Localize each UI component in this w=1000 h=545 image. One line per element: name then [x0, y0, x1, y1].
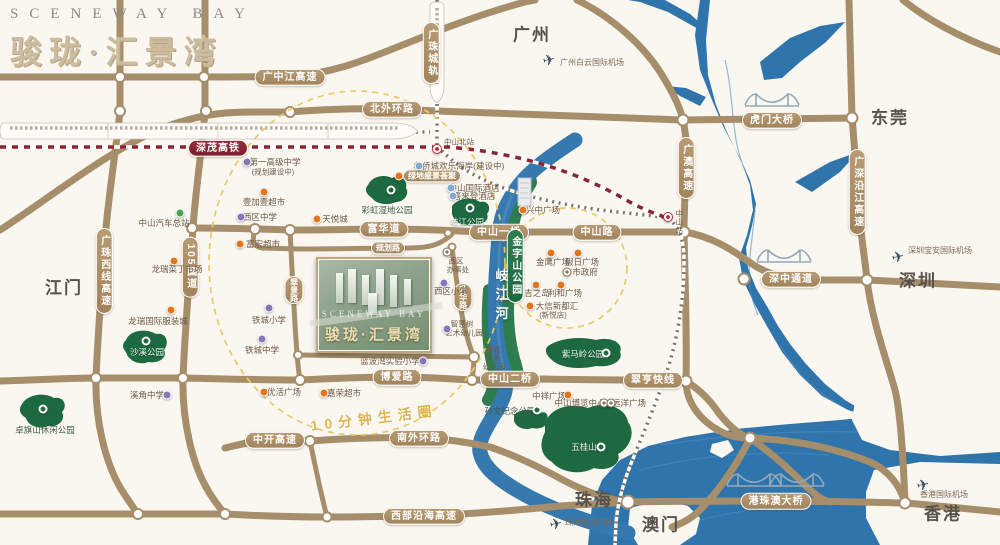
- badge-boai-road: 博爱路: [373, 369, 422, 386]
- label-no1-senior-high: 第一高级中学: [249, 158, 300, 167]
- poi-dot-orange: [167, 306, 176, 315]
- label-zhongshan-expo-center: 中山博览中心: [554, 399, 605, 408]
- badge-humen-bridge: 虎门大桥: [742, 112, 802, 129]
- badge-zhongkai-expwy: 中开高速: [245, 432, 305, 449]
- poi-dot-orange: [574, 249, 583, 258]
- label-sheraton-hotel: 喜来登酒店: [453, 192, 496, 201]
- poi-dot-blue: [449, 192, 458, 201]
- poi-dot-orange: [395, 172, 404, 181]
- poi-dot-orange: [236, 240, 245, 249]
- label-jucheng-kindergarten-2: 子弟: [486, 354, 501, 362]
- label-xiqu-office-2: 办事处: [447, 266, 470, 274]
- badge-zhongshan-bridge-2: 中山二桥: [480, 371, 540, 388]
- badge-cuiheng-express: 翠亨快线: [623, 372, 683, 389]
- label-jusco: 吉之岛: [524, 289, 550, 298]
- badge-guangzhu-rail: 广珠城轨: [423, 22, 440, 84]
- badge-north-outer-ring: 北外环路: [362, 101, 422, 118]
- badge-hzm-bridge: 港珠澳大桥: [741, 493, 812, 510]
- badge-cuijing-road: 翠景路: [284, 276, 303, 304]
- label-xiqu-primary: 西区小学: [434, 287, 468, 296]
- park-icon: [466, 204, 475, 213]
- rail-station-dot: [663, 212, 673, 222]
- label-yijiayi-supermarket: 壹加壹超市: [243, 198, 286, 207]
- airplane-icon: ✈: [890, 247, 906, 267]
- project-title: 骏珑·汇景湾: [325, 323, 423, 344]
- label-holiday-plaza: 假日广场: [565, 258, 599, 267]
- poi-dot-orange: [170, 257, 179, 266]
- brand-logo-en: SCENEWAY BAY: [10, 6, 256, 23]
- poi-dot-green: [176, 209, 185, 218]
- label-zhongshan-bus-terminal: 中山汽车总站: [138, 219, 189, 228]
- label-oct-happy-coast: 华侨城欢乐海岸(建设中): [414, 162, 505, 171]
- label-fuhong-supermarket: 富宏超市: [246, 240, 280, 249]
- airplane-icon: ✈: [548, 514, 564, 534]
- label-zimaling-park: 紫马岭公园: [562, 350, 605, 359]
- label-longrui-market: 龙瑞菜丁市场: [151, 265, 202, 274]
- city-dongguan: 东莞: [871, 110, 909, 127]
- life-circle-label: 10分钟生活圈: [310, 403, 438, 432]
- park-icon: [142, 337, 151, 346]
- label-shaxi-park: 沙溪公园: [130, 348, 164, 357]
- label-lihe-plaza: 利和广场: [548, 289, 582, 298]
- label-tiecheng-middle: 铁城中学: [245, 346, 279, 355]
- label-xijiao-middle: 溪角中学: [130, 391, 164, 400]
- brand-logo-cn: 骏珑·汇景湾: [10, 27, 256, 73]
- poi-dot-purple: [440, 279, 449, 288]
- poi-dot-purple: [419, 357, 428, 366]
- park-icon: [387, 186, 396, 195]
- poi-dot-orange: [532, 281, 541, 290]
- poi-dot-orange: [526, 302, 535, 311]
- city-hongkong: 香港: [924, 506, 962, 523]
- badge-south-outer-ring: 南外环路: [389, 430, 449, 447]
- qijiang-river-label: 岐江河: [495, 269, 508, 326]
- airplane-icon: ✈: [915, 475, 931, 495]
- label-xingzhong-plaza: 兴中广场: [526, 206, 560, 215]
- label-wuguishan: 五桂山: [571, 443, 597, 452]
- label-baoan-airport: 深圳宝安国际机场: [908, 247, 972, 255]
- label-no1-senior-high-note: (规划建设中): [252, 168, 295, 176]
- label-tiecheng-primary: 铁城小学: [252, 316, 286, 325]
- label-sunwen-memorial-park: 孙文纪念公园: [484, 407, 535, 416]
- label-overlay: SCENEWAY BAY 骏珑·汇景湾 SCENEWAY BAY 骏珑·汇景湾 …: [0, 0, 1000, 545]
- city-guangzhou: 广州: [513, 27, 551, 44]
- poi-dot-ring: [443, 248, 452, 257]
- park-icon: [602, 349, 611, 358]
- city-shenzhen: 深圳: [899, 273, 937, 290]
- poi-dot-ring: [563, 268, 572, 277]
- badge-shenzhong-corridor: 深中通道: [761, 271, 821, 288]
- poi-dot-purple: [265, 304, 274, 313]
- label-daxin-metro-mall: 大信新都汇: [536, 302, 579, 311]
- label-yuanyang-plaza: 远洋广场: [612, 399, 646, 408]
- label-jiarong-supermarket: 嘉荣超市: [327, 389, 361, 398]
- badge-guangao-expwy: 广澳高速: [678, 137, 695, 199]
- poi-dot-orange: [519, 206, 528, 215]
- badge-shengjing-huiju: 绿地盛景荟聚: [403, 169, 461, 182]
- poi-dot-purple: [163, 391, 172, 400]
- badge-planned-road: 规划路: [371, 241, 405, 254]
- poi-dot-purple: [258, 335, 267, 344]
- label-daxin-xinyue: (新悦店): [539, 311, 567, 319]
- badge-guangzhu-west-expwy: 广珠西线高速: [96, 228, 113, 314]
- label-zhongshan-north-station: 中山北站: [444, 138, 474, 146]
- badge-guangzhongjiang-expwy: 广中江高速: [255, 69, 326, 86]
- badge-guangshen-riverside-expwy: 广深沿江高速: [849, 149, 866, 235]
- poi-dot-orange: [557, 281, 566, 290]
- label-jinwan-airport: 珠海金湾机场: [565, 519, 613, 527]
- label-tianyue-city: 天悦城: [322, 215, 348, 224]
- label-rainbow-wetland-park: 彩虹湿地公园: [361, 206, 412, 215]
- poi-dot-orange: [320, 389, 329, 398]
- label-lanbowan-primary: 蓝波湾实验小学: [360, 357, 420, 366]
- brand-logo: SCENEWAY BAY 骏珑·汇景湾: [10, 6, 256, 73]
- poi-dot-orange: [260, 388, 269, 397]
- project-rendering: SCENEWAY BAY 骏珑·汇景湾: [316, 257, 432, 353]
- label-xiqu-middle-school: 西区中学: [243, 213, 277, 222]
- poi-dot-ring: [607, 399, 616, 408]
- badge-fuhua-road: 富华道: [360, 221, 409, 238]
- label-zhongshan-station: 中山站: [675, 209, 683, 235]
- badge-west-coastal-expwy: 西部沿海高速: [383, 508, 465, 525]
- badge-shenmao-hsr: 深茂高铁: [188, 140, 248, 157]
- poi-dot-orange: [313, 215, 322, 224]
- badge-jinzishan-park: 金字山公园: [507, 229, 524, 303]
- poi-dot-purple: [443, 325, 452, 334]
- project-watermark: SCENEWAY BAY: [322, 309, 426, 319]
- park-icon: [533, 406, 542, 415]
- poi-dot-orange: [260, 188, 269, 197]
- label-zhuoqishan-park: 卓旗山休闲公园: [15, 426, 75, 435]
- airplane-icon: ✈: [541, 50, 557, 70]
- label-xiqu-office-1: 西区: [449, 257, 464, 265]
- poi-dot-purple: [237, 213, 246, 222]
- label-jucheng-kindergarten-3: 幼儿园: [483, 363, 506, 371]
- city-macau: 澳门: [642, 517, 680, 534]
- park-icon: [39, 405, 48, 414]
- label-qijiang-park: 岐江公园: [450, 218, 484, 227]
- poi-dot-blue: [415, 162, 424, 171]
- label-zhihuishu-kindergarten-1: 智慧树: [451, 320, 474, 328]
- location-map: SCENEWAY BAY 骏珑·汇景湾 SCENEWAY BAY 骏珑·汇景湾 …: [0, 0, 1000, 545]
- park-icon: [597, 443, 606, 452]
- city-zhuhai: 珠海: [575, 492, 613, 509]
- label-baiyun-airport: 广州白云国际机场: [560, 59, 624, 67]
- poi-dot-orange: [564, 391, 573, 400]
- label-city-government: 市政府: [572, 268, 598, 277]
- city-jiangmen: 江门: [45, 280, 83, 297]
- badge-zhongshan-road: 中山路: [573, 224, 622, 241]
- label-youhuo-plaza: 优活广场: [267, 388, 301, 397]
- poi-dot-orange: [547, 249, 556, 258]
- label-longrui-garment-city: 龙瑞国际服装城: [128, 317, 188, 326]
- poi-dot-purple: [243, 158, 252, 167]
- rail-station-dot: [432, 144, 442, 154]
